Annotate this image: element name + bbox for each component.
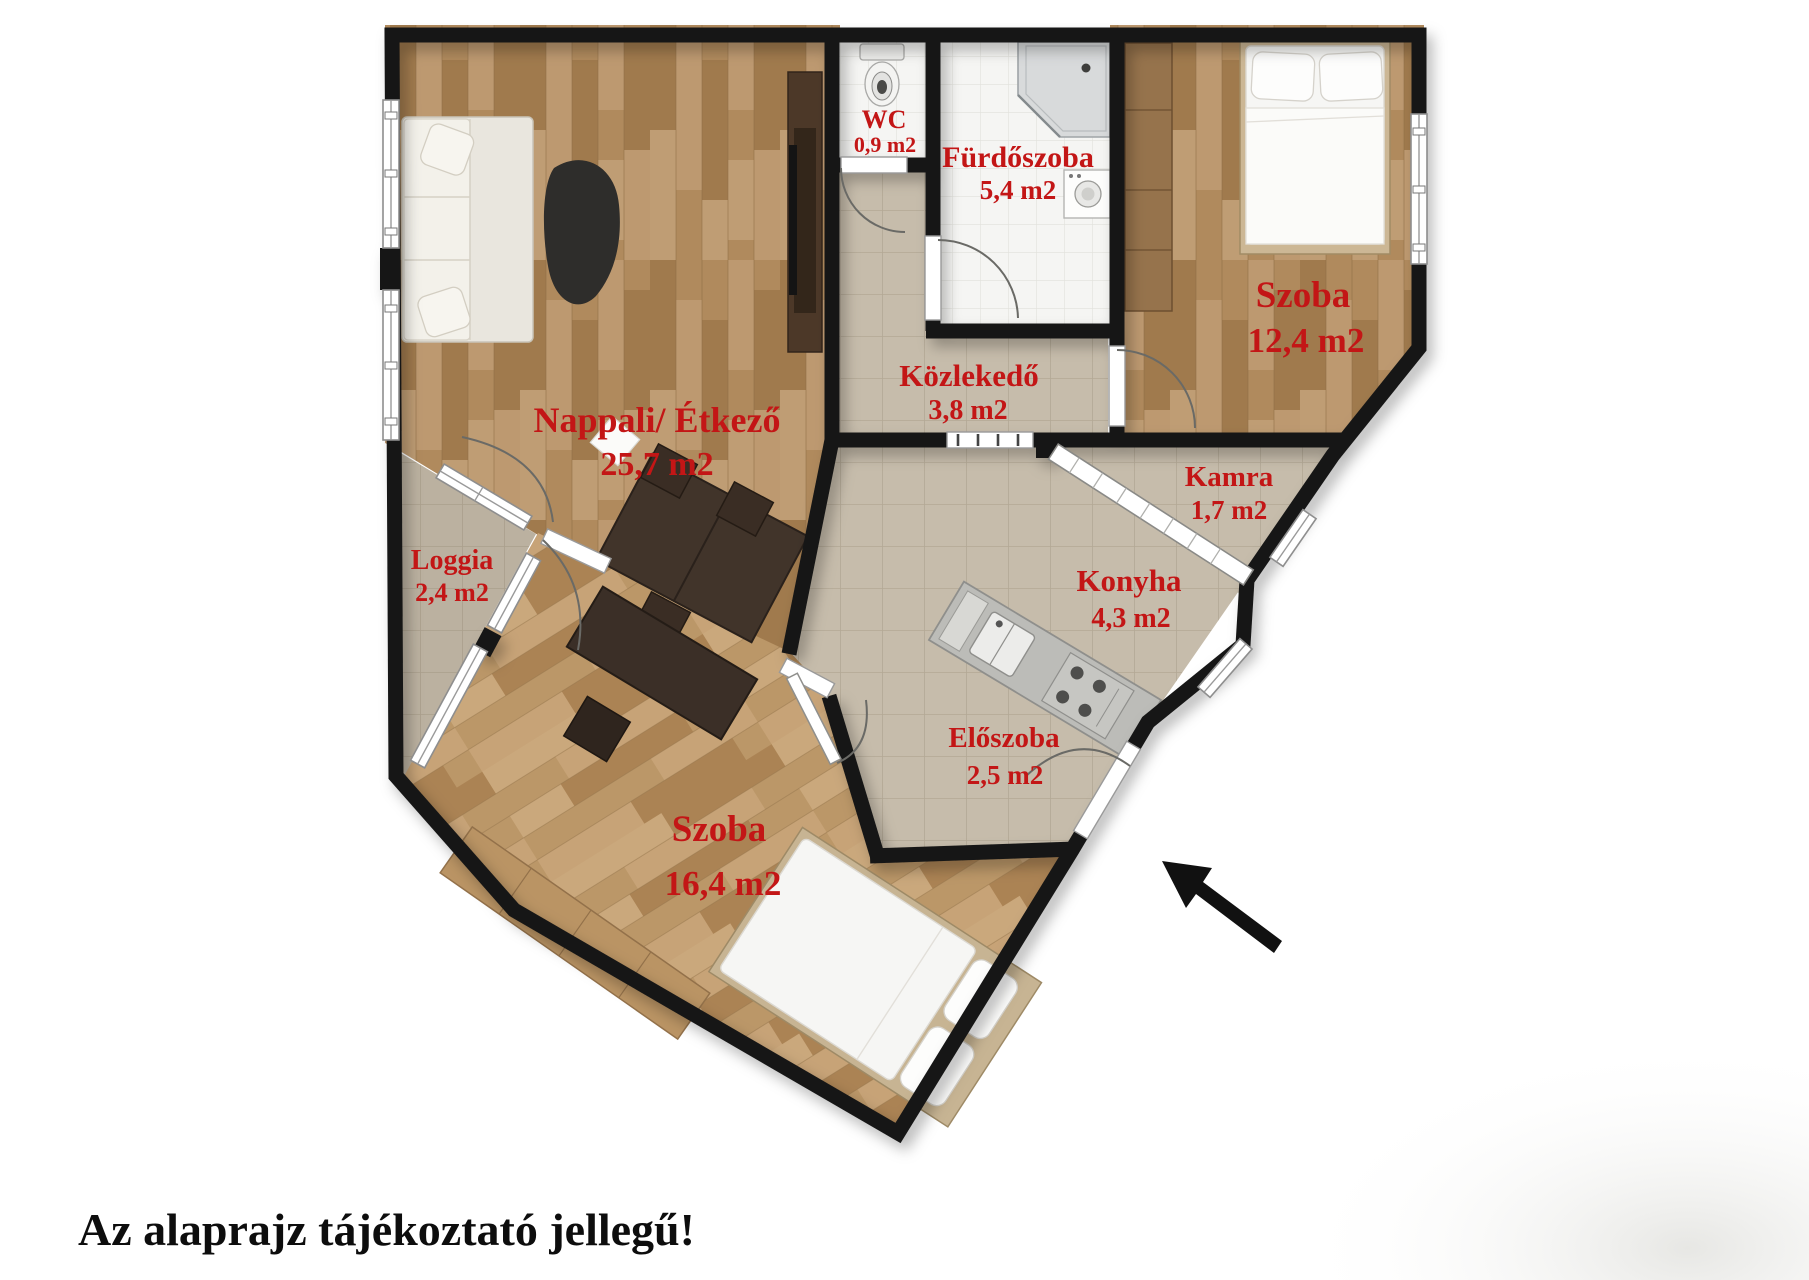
furdoszoba-area: 5,4 m2 <box>980 175 1057 205</box>
kozlekedo-name: Közlekedő <box>899 358 1039 393</box>
disclaimer-text: Az alaprajz tájékoztató jellegű! <box>78 1204 695 1255</box>
wc-area: 0,9 m2 <box>854 132 916 157</box>
eloszoba-name: Előszoba <box>948 722 1060 754</box>
door-wc <box>841 157 907 173</box>
wc-name: WC <box>862 105 907 134</box>
passage-kozlekedo-konyha <box>947 432 1033 448</box>
sofa-icon <box>402 117 533 342</box>
szoba-felso-area: 12,4 m2 <box>1248 321 1365 360</box>
wardrobe-icon <box>1125 43 1172 311</box>
kamra-name: Kamra <box>1185 461 1274 493</box>
wall-window-post-left <box>380 248 400 290</box>
loggia-name: Loggia <box>411 545 493 576</box>
konyha-name: Konyha <box>1076 563 1182 598</box>
nappali-area: 25,7 m2 <box>600 446 713 483</box>
window-szoba-felso-east <box>1411 114 1427 264</box>
nappali-name: Nappali/ Étkező <box>533 400 780 440</box>
kamra-area: 1,7 m2 <box>1191 495 1268 525</box>
double-bed-icon <box>1240 40 1390 254</box>
loggia-area: 2,4 m2 <box>415 578 489 607</box>
floor-plan-page: Nappali/ Étkező 25,7 m2 WC 0,9 m2 Fürdős… <box>0 0 1809 1280</box>
wall-szoba-eloszoba-top <box>870 849 1075 856</box>
szoba-felso-name: Szoba <box>1256 275 1351 316</box>
tv-cabinet-icon <box>788 72 822 352</box>
window-nappali-west-1 <box>383 100 399 248</box>
eloszoba-area: 2,5 m2 <box>967 760 1044 790</box>
kozlekedo-area: 3,8 m2 <box>928 395 1007 426</box>
door-furdoszoba <box>925 236 941 320</box>
door-szoba-felso <box>1109 346 1125 426</box>
szoba-also-name: Szoba <box>672 809 767 850</box>
konyha-area: 4,3 m2 <box>1091 603 1170 634</box>
page-shadow <box>1200 960 1809 1280</box>
washing-machine-icon <box>1064 170 1110 218</box>
furdoszoba-name: Fürdőszoba <box>942 141 1094 174</box>
floor-plan-canvas: Nappali/ Étkező 25,7 m2 WC 0,9 m2 Fürdős… <box>0 0 1809 1280</box>
szoba-also-area: 16,4 m2 <box>665 864 782 903</box>
window-nappali-west-2 <box>383 290 399 440</box>
entrance-arrow-icon <box>1162 861 1282 953</box>
